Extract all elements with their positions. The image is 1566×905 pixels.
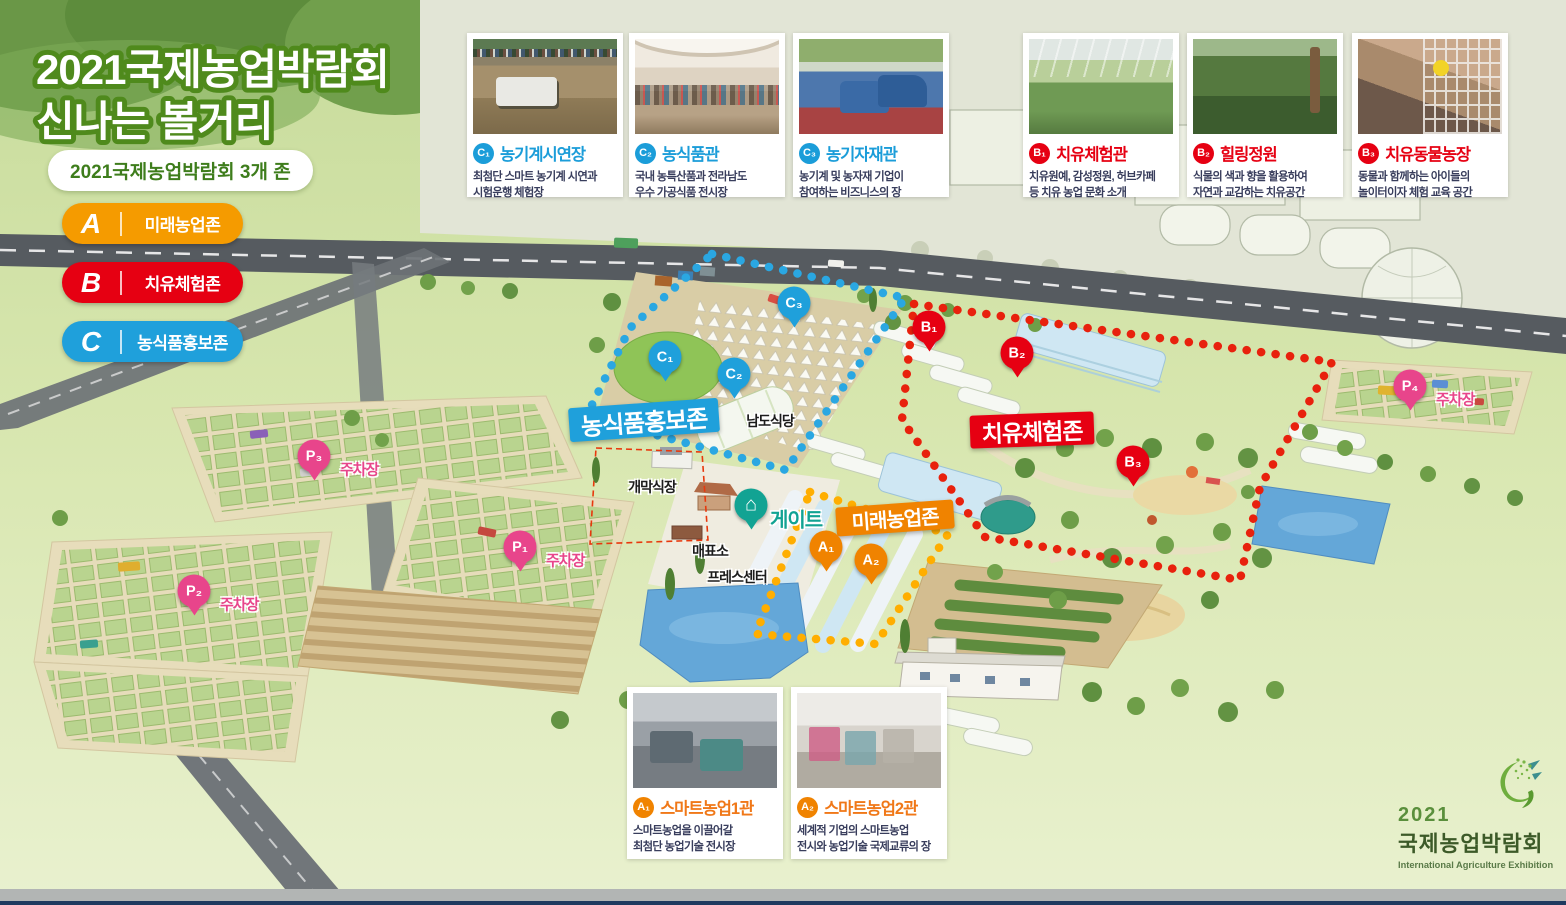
card-title: 치유체험관 [1056,141,1127,165]
card-photo-smart-farm-1 [633,693,777,788]
card-photo-tractors [799,39,943,134]
legend-letter-c: C [62,326,120,358]
sprout-globe-icon [1488,752,1546,814]
card-desc: 동물과 함께하는 아이들의놀이터이자 체험 교육 공간 [1358,170,1502,202]
card-desc: 치유원예, 감성정원, 허브카페등 치유 농업 문화 소개 [1029,170,1173,202]
card-photo-animal-farm [1358,39,1502,134]
card-smart-farm-1: A₁ 스마트농업1관 스마트농업을 이끌어갈최첨단 농업기술 전시장 [627,687,783,859]
map-pin-p3: P₃ [298,440,331,473]
parking-caption-p4: 주차장 [1436,389,1474,410]
card-desc: 국내 농특산품과 전라남도우수 가공식품 전시장 [635,170,779,202]
legend-letter-a: A [62,208,120,240]
map-pin-b2: B₂ [1001,337,1034,370]
badge-c3: C₃ [799,143,820,164]
card-title: 농식품관 [662,141,719,165]
card-desc: 최첨단 스마트 농기계 시연과시험운행 체험장 [473,170,617,202]
footer-navy-bar [0,901,1566,905]
exhibition-logo: 2021 국제농업박람회 International Agriculture E… [1398,752,1558,870]
badge-b1: B₁ [1029,143,1050,164]
card-desc: 세계적 기업의 스마트농업전시와 농업기술 국제교류의 장 [797,824,941,856]
logo-name: 국제농업박람회 [1398,827,1558,858]
pin-label: B₃ [1124,454,1141,470]
badge-a1: A₁ [633,797,654,818]
card-title: 농기자재관 [826,141,897,165]
card-photo-garden [1193,39,1337,134]
badge-c2: C₂ [635,143,656,164]
card-healing-hall: B₁ 치유체험관 치유원예, 감성정원, 허브카페등 치유 농업 문화 소개 [1023,33,1179,197]
pin-label: P₁ [512,539,528,555]
legend-item-future-zone: A 미래농업존 [62,203,243,244]
map-pin-c3: C₃ [778,287,811,320]
facility-label-ticket-office: 매표소 [692,541,728,561]
card-photo-machinery [473,39,617,134]
pin-label: B₁ [921,319,937,335]
facility-label-press-center: 프레스센터 [707,567,766,587]
legend-label-c: 농식품홍보존 [122,329,243,354]
card-machinery-demo: C₁ 농기계시연장 최첨단 스마트 농기계 시연과시험운행 체험장 [467,33,623,197]
map-pin-b1: B₁ [913,311,946,344]
badge-b2: B₂ [1193,143,1214,164]
card-photo-food-hall [635,39,779,134]
facility-label-opening-ceremony: 개막식장 [628,477,676,497]
logo-subtitle: International Agriculture Exhibition [1398,860,1558,870]
zone-count-pill: 2021국제농업박람회 3개 존 [48,150,313,191]
card-photo-healing-hall [1029,39,1173,134]
card-desc: 농기계 및 농자재 기업이참여하는 비즈니스의 장 [799,170,943,202]
card-desc: 스마트농업을 이끌어갈최첨단 농업기술 전시장 [633,824,777,856]
legend-label-a: 미래농업존 [122,211,243,236]
card-title: 힐링정원 [1220,141,1277,165]
facility-label-restaurant: 남도식당 [746,411,794,431]
map-pin-a1: A₁ [810,531,843,564]
pin-label: P₃ [306,448,322,464]
parking-caption-p3: 주차장 [340,459,378,480]
card-animal-farm: B₃ 치유동물농장 동물과 함께하는 아이들의놀이터이자 체험 교육 공간 [1352,33,1508,197]
pin-label: B₂ [1009,345,1026,361]
card-farm-materials: C₃ 농기자재관 농기계 및 농자재 기업이참여하는 비즈니스의 장 [793,33,949,197]
footer-gray-bar [0,889,1566,901]
map-pin-c1: C₁ [649,341,682,374]
page-title: 2021국제농업박람회 신나는 볼거리 [26,36,466,161]
poster-map: 2021국제농업박람회 신나는 볼거리 2021국제농업박람회 3개 존 A 미… [0,0,1566,905]
parking-caption-p1: 주차장 [546,550,584,571]
card-title: 치유동물농장 [1385,141,1470,165]
legend-item-promo-zone: C 농식품홍보존 [62,321,243,362]
card-desc: 식물의 색과 향을 활용하여자연과 교감하는 치유공간 [1193,170,1337,202]
pin-label: P₄ [1402,378,1419,394]
pin-label: A₂ [863,552,880,568]
map-pin-p1: P₁ [504,531,537,564]
pin-label: C₁ [657,349,673,365]
legend-label-b: 치유체험존 [122,270,243,295]
gate-label: 게이트 [770,504,822,533]
map-pin-b3: B₃ [1117,446,1150,479]
card-food-hall: C₂ 농식품관 국내 농특산품과 전라남도우수 가공식품 전시장 [629,33,785,197]
legend-letter-b: B [62,267,120,299]
pin-label: C₃ [785,295,802,311]
card-title: 스마트농업1관 [660,795,753,819]
badge-c1: C₁ [473,143,494,164]
pin-label: P₂ [186,583,202,599]
map-pin-p2: P₂ [178,575,211,608]
pin-label: C₂ [726,366,743,382]
map-pin-p4: P₄ [1394,370,1427,403]
card-photo-smart-farm-2 [797,693,941,788]
zone-ribbon-healing: 치유체험존 [969,411,1094,448]
legend-item-healing-zone: B 치유체험존 [62,262,243,303]
card-smart-farm-2: A₂ 스마트농업2관 세계적 기업의 스마트농업전시와 농업기술 국제교류의 장 [791,687,947,859]
badge-a2: A₂ [797,797,818,818]
map-pin-a2: A₂ [855,544,888,577]
home-icon: ⌂ [745,494,757,517]
card-healing-garden: B₂ 힐링정원 식물의 색과 향을 활용하여자연과 교감하는 치유공간 [1187,33,1343,197]
title-line-2: 신나는 볼거리 [36,98,273,145]
card-title: 스마트농업2관 [824,795,917,819]
pin-label: A₁ [818,539,834,555]
map-pin-c2: C₂ [718,358,751,391]
gate-pin: ⌂ [735,489,768,522]
parking-caption-p2: 주차장 [220,594,258,615]
badge-b3: B₃ [1358,143,1379,164]
card-title: 농기계시연장 [500,141,585,165]
title-line-1: 2021국제농업박람회 [36,46,389,93]
